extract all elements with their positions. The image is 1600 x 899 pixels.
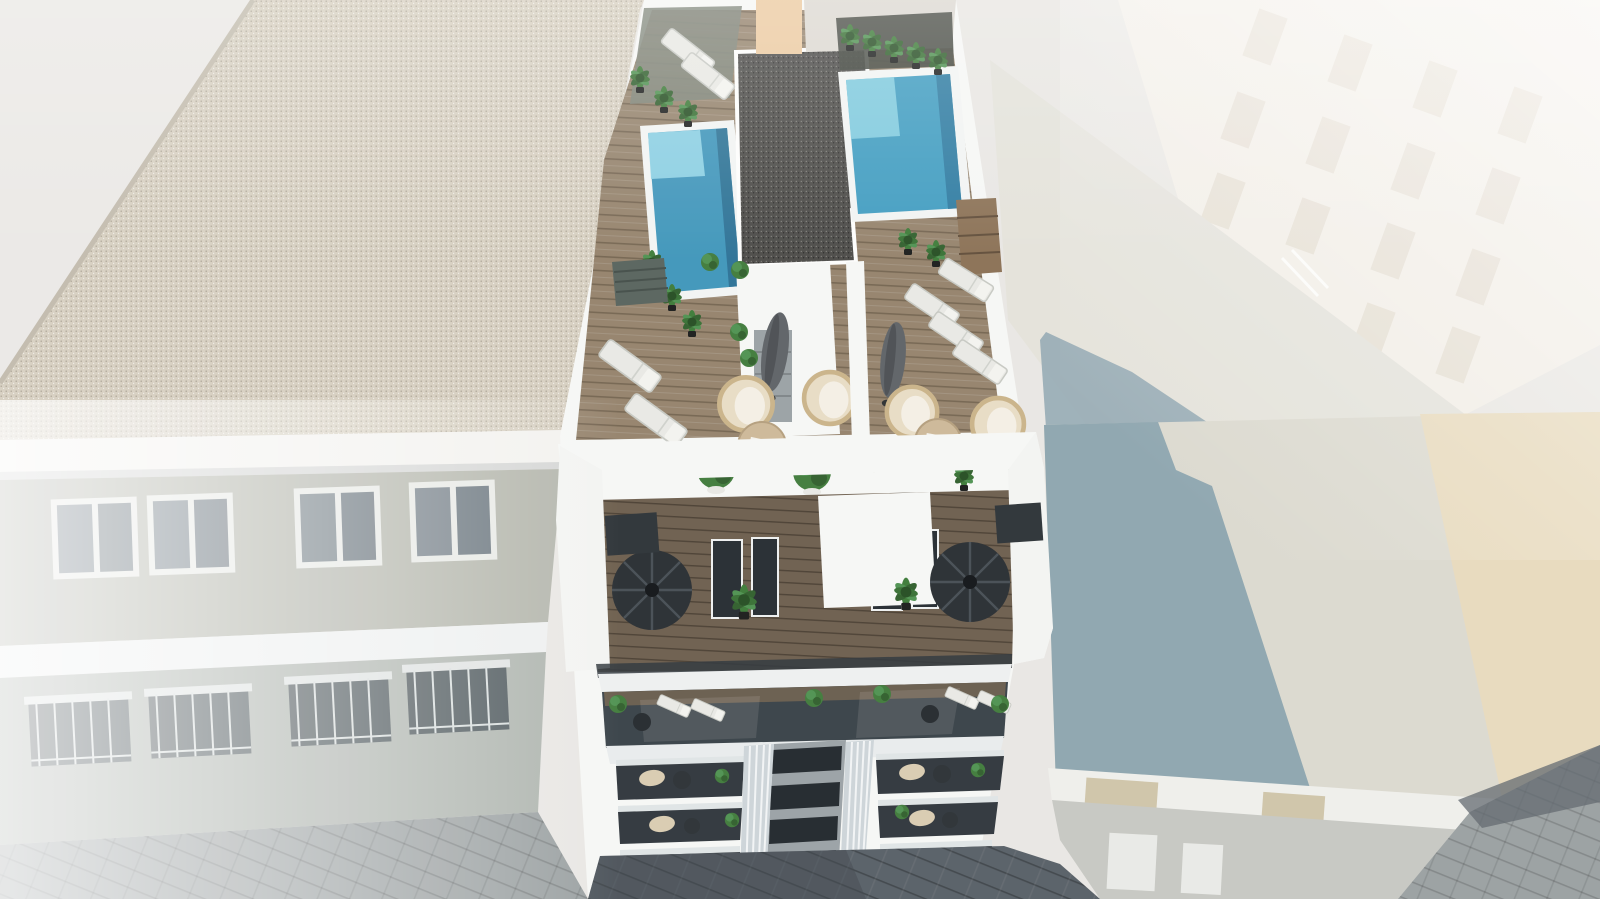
render-canvas: [0, 0, 1600, 899]
exposure-overlay: [0, 0, 1600, 899]
aerial-render-scene: [0, 0, 1600, 899]
